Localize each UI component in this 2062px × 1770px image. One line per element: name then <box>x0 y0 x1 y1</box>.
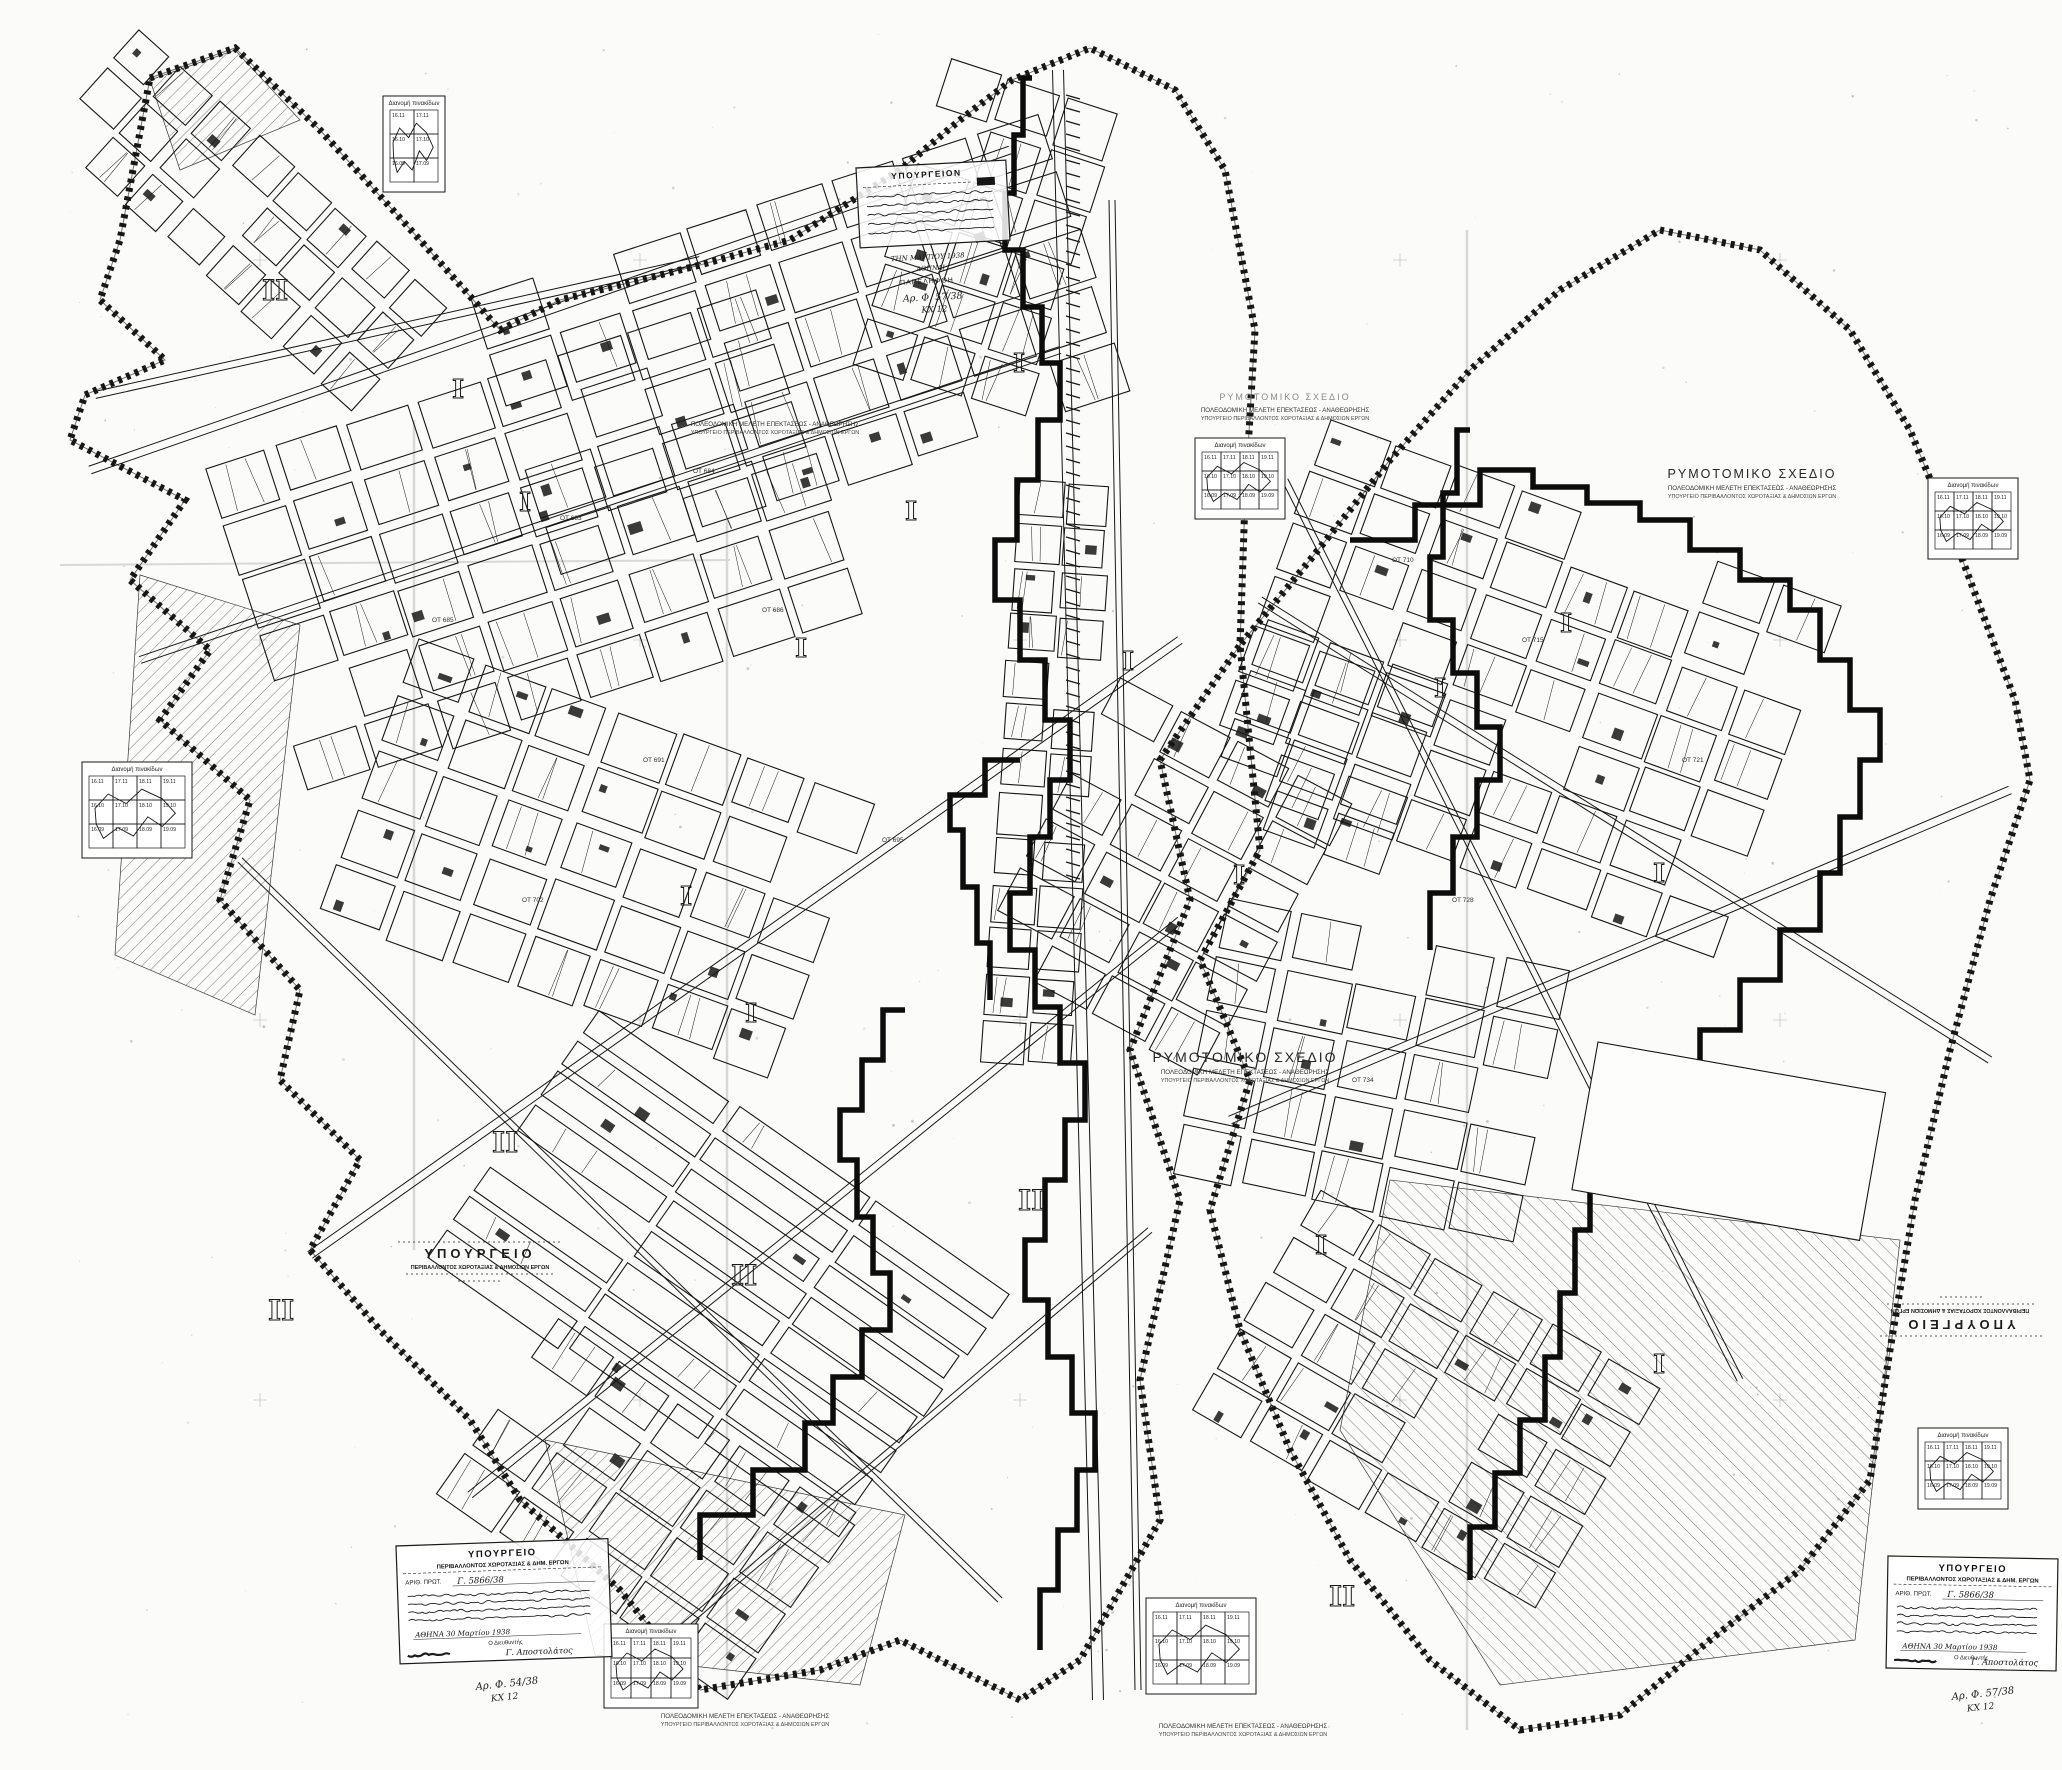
file-code: ΚΧ 12 <box>1966 1702 1996 1715</box>
stamp-signature: Γ. Αποστολάτος <box>1970 1656 2038 1667</box>
keymap-sheet-number: 17.10 <box>1946 1464 1959 1470</box>
approval-stamp: ΥΠΟΥΡΓΕΙΟΠΕΡΙΒΑΛΛΟΝΤΟΣ ΧΩΡΟΤΑΞΙΑΣ & ΔΗΜ.… <box>1886 1556 2058 1671</box>
keymap-sheet-number: 18.09 <box>653 1681 666 1687</box>
ministry-dept: ΠΕΡΙΒΑΛΛΟΝΤΟΣ ΧΩΡΟΤΑΞΙΑΣ & ΔΗΜΟΣΙΩΝ ΕΡΓΩ… <box>1891 1307 2030 1313</box>
keymap-sheet-number: 17.11 <box>115 779 128 785</box>
plan-subtitle1-label: ΠΟΛΕΟΔΟΜΙΚΗ ΜΕΛΕΤΗ ΕΠΕΚΤΑΣΕΩΣ - ΑΝΑΘΕΩΡΗ… <box>661 1713 830 1720</box>
keymap-index: Διανομή πινακίδων16.1117.1118.1119.1116.… <box>1146 1598 1256 1694</box>
block-number-label: ΟΤ 710 <box>1392 557 1414 564</box>
keymap-sheet-number: 18.10 <box>1242 474 1255 480</box>
block-number-label: ΟΤ 684 <box>693 468 715 475</box>
block-number-label: ΟΤ 686 <box>762 607 784 614</box>
plan-title-label: ΡΥΜΟΤΟΜΙΚΟ ΣΧΕΔΙΟ <box>1668 467 1837 481</box>
keymap-sheet-number: 19.10 <box>1994 514 2007 520</box>
keymap-sheet-number: 19.11 <box>1227 1615 1240 1621</box>
block-number-label: ΟΤ 691 <box>643 757 665 764</box>
block-number-label: ΟΤ 734 <box>1352 1077 1374 1084</box>
keymap-sheet-number: 16.10 <box>1927 1464 1940 1470</box>
keymap-sheet-number: 16.09 <box>91 827 104 833</box>
keymap-sheet-number: 18.09 <box>1965 1483 1978 1489</box>
approved-plan-limit <box>950 760 1020 1000</box>
keymap-sheet-number: 18.09 <box>1242 493 1255 499</box>
block-number-label: ΟΤ 685 <box>432 617 454 624</box>
keymap-index: Διανομή πινακίδων16.1117.1118.1119.1116.… <box>82 762 192 858</box>
keymap-sheet-number: 19.11 <box>1984 1445 1997 1451</box>
keymap-sheet-number: 17.10 <box>416 137 429 143</box>
ministry-dept: ΠΕΡΙΒΑΛΛΟΝΤΟΣ ΧΩΡΟΤΑΞΙΑΣ & ΔΗΜΟΣΙΩΝ ΕΡΓΩ… <box>411 1265 550 1271</box>
block-number-label: ΟΤ 702 <box>522 897 544 904</box>
sector-numeral: Ι <box>680 882 692 912</box>
plan-subtitle2-label: ΥΠΟΥΡΓΕΙΟ ΠΕΡΙΒΑΛΛΟΝΤΟΣ ΧΩΡΟΤΑΞΙΑΣ & ΔΗΜ… <box>1161 1078 1329 1084</box>
keymap-sheet-number: 19.10 <box>1261 474 1274 480</box>
keymap-index: Διανομή πινακίδων16.1117.1118.1119.1116.… <box>604 1624 698 1708</box>
sector-numeral: Ι <box>452 375 464 405</box>
keymap-sheet-number: 16.11 <box>1204 455 1217 461</box>
block-number-label: ΟΤ 715 <box>1522 637 1544 644</box>
keymap-sheet-number: 18.11 <box>1975 495 1988 501</box>
sector-numeral: ΙΙ <box>731 1259 757 1292</box>
ministry-name: ΥΠΟΥΡΓΕΙΟ <box>424 1246 535 1261</box>
keymap-sheet-number: 16.11 <box>1927 1445 1940 1451</box>
file-code: ΚΧ 12 <box>920 304 947 315</box>
block-number-label: ΟΤ 695 <box>882 837 904 844</box>
keymap-sheet-number: 19.10 <box>673 1661 686 1667</box>
sector-numeral: Ι <box>905 497 917 527</box>
sector-numeral: Ι <box>1653 1350 1665 1380</box>
plan-title-block: ΠΟΛΕΟΔΟΜΙΚΗ ΜΕΛΕΤΗ ΕΠΕΚΤΑΣΕΩΣ - ΑΝΑΘΕΩΡΗ… <box>661 1713 830 1728</box>
file-number: Αρ. Φ. 54/38 <box>474 1675 539 1693</box>
ministry-stamp: ΥΠΟΥΡΓΕΙΟΠΕΡΙΒΑΛΛΟΝΤΟΣ ΧΩΡΟΤΑΞΙΑΣ & ΔΗΜΟ… <box>398 1242 563 1281</box>
sector-numeral: ΙΙ <box>262 274 288 307</box>
stamp-act-label: ΑΡΙΘ. ΠΡΩΤ. <box>1895 1590 1932 1598</box>
keymap-sheet-number: 16.11 <box>1937 495 1950 501</box>
street-grid-cluster <box>427 1008 1010 1543</box>
plan-title-block: ΠΟΛΕΟΔΟΜΙΚΗ ΜΕΛΕΤΗ ΕΠΕΚΤΑΣΕΩΣ - ΑΝΑΘΕΩΡΗ… <box>691 421 860 436</box>
plan-subtitle1-label: ΠΟΛΕΟΔΟΜΙΚΗ ΜΕΛΕΤΗ ΕΠΕΚΤΑΣΕΩΣ - ΑΝΑΘΕΩΡΗ… <box>691 421 860 428</box>
plan-title-block: ΡΥΜΟΤΟΜΙΚΟ ΣΧΕΔΙΟΠΟΛΕΟΔΟΜΙΚΗ ΜΕΛΕΤΗ ΕΠΕΚ… <box>1201 392 1370 422</box>
keymap-sheet-number: 19.10 <box>1227 1639 1240 1645</box>
sector-numeral: ΙΙ <box>268 1294 294 1327</box>
keymap-sheet-number: 18.11 <box>1203 1615 1216 1621</box>
keymap-title: Διανομή πινακίδων <box>1215 442 1266 449</box>
street-grid-cluster <box>1199 418 1842 962</box>
keymap-sheet-number: 18.10 <box>653 1661 666 1667</box>
keymap-sheet-number: 17.11 <box>1956 495 1969 501</box>
file-number-note: Αρ. Φ. 54/38ΚΧ 12 <box>474 1675 540 1706</box>
keymap-sheet-number: 16.10 <box>1937 514 1950 520</box>
keymap-index: Διανομή πινακίδων16.1117.1118.1119.1116.… <box>1195 438 1285 519</box>
keymap-sheet-number: 16.11 <box>91 779 104 785</box>
keymap-sheet-number: 18.11 <box>1242 455 1255 461</box>
plan-subtitle1-label: ΠΟΛΕΟΔΟΜΙΚΗ ΜΕΛΕΤΗ ΕΠΕΚΤΑΣΕΩΣ - ΑΝΑΘΕΩΡΗ… <box>1159 1723 1328 1730</box>
keymap-sheet-number: 19.11 <box>1994 495 2007 501</box>
keymap-sheet-number: 19.11 <box>673 1641 686 1647</box>
plan-subtitle2-label: ΥΠΟΥΡΓΕΙΟ ΠΕΡΙΒΑΛΛΟΝΤΟΣ ΧΩΡΟΤΑΞΙΑΣ & ΔΗΜ… <box>1201 416 1369 422</box>
plan-title-label: ΡΥΜΟΤΟΜΙΚΟ ΣΧΕΔΙΟ <box>1152 1049 1337 1065</box>
keymap-sheet-number: 17.10 <box>1956 514 1969 520</box>
keymap-sheet-number: 16.09 <box>1155 1663 1168 1669</box>
approval-stamp: ΥΠΟΥΡΓΕΙΟΠΕΡΙΒΑΛΛΟΝΤΟΣ ΧΩΡΟΤΑΞΙΑΣ & ΔΗΜ.… <box>396 1539 612 1664</box>
ministry-name: ΥΠΟΥΡΓΕΙΟ <box>1904 1317 2015 1332</box>
keymap-sheet-number: 19.09 <box>1227 1663 1240 1669</box>
plan-title-block: ΡΥΜΟΤΟΜΙΚΟ ΣΧΕΔΙΟΠΟΛΕΟΔΟΜΙΚΗ ΜΕΛΕΤΗ ΕΠΕΚ… <box>1668 467 1837 500</box>
sector-numeral: Ι <box>1013 349 1025 379</box>
sector-numeral: ΙΙ <box>492 1126 518 1159</box>
keymap-sheet-number: 17.11 <box>1223 455 1236 461</box>
plan-title-block: ΠΟΛΕΟΔΟΜΙΚΗ ΜΕΛΕΤΗ ΕΠΕΚΤΑΣΕΩΣ - ΑΝΑΘΕΩΡΗ… <box>1159 1723 1328 1738</box>
stamp-act-label: ΑΡΙΘ. ΠΡΩΤ. <box>405 1578 442 1586</box>
ministry-stamp: ΥΠΟΥΡΓΕΙΟΠΕΡΙΒΑΛΛΟΝΤΟΣ ΧΩΡΟΤΑΞΙΑΣ & ΔΗΜΟ… <box>1877 1297 2042 1336</box>
keymap-sheet-number: 19.10 <box>163 803 176 809</box>
sector-numeral: Ι <box>1233 861 1245 891</box>
sector-numeral: ΙΙ <box>1018 1184 1044 1217</box>
keymap-sheet-number: 16.11 <box>613 1641 626 1647</box>
keymap-sheet-number: 18.11 <box>653 1641 666 1647</box>
plan-subtitle1-label: ΠΟΛΕΟΔΟΜΙΚΗ ΜΕΛΕΤΗ ΕΠΕΚΤΑΣΕΩΣ - ΑΝΑΘΕΩΡΗ… <box>1161 1069 1330 1076</box>
keymap-index: Διανομή πινακίδων16.1117.1118.1119.1116.… <box>1928 478 2018 559</box>
keymap-sheet-number: 19.09 <box>1994 533 2007 539</box>
keymap-sheet-number: 19.11 <box>163 779 176 785</box>
sector-numeral: Ι <box>1122 647 1134 677</box>
keymap-title: Διανομή πινακίδων <box>112 766 163 773</box>
keymap-index: Διανομή πινακίδων16.1117.1116.1017.1016.… <box>383 96 445 192</box>
scanned-city-plan-page: Διανομή πινακίδων16.1117.1116.1017.1016.… <box>0 0 2062 1770</box>
city-plan-scan: Διανομή πινακίδων16.1117.1116.1017.1016.… <box>0 0 2062 1770</box>
plan-subtitle2-label: ΥΠΟΥΡΓΕΙΟ ΠΕΡΙΒΑΛΛΟΝΤΟΣ ΧΩΡΟΤΑΞΙΑΣ & ΔΗΜ… <box>1668 494 1836 500</box>
file-number: Αρ. Φ. 57/38 <box>902 291 963 305</box>
keymap-sheet-number: 18.09 <box>1975 533 1988 539</box>
keymap-sheet-number: 19.10 <box>1984 1464 1997 1470</box>
stamp-header: ΥΠΟΥΡΓΕΙΟ <box>1938 1563 2007 1575</box>
keymap-sheet-number: 19.09 <box>163 827 176 833</box>
keymap-sheet-number: 19.09 <box>1984 1483 1997 1489</box>
sector-numeral: Ι <box>1653 859 1665 889</box>
street-grid-cluster <box>1199 619 1448 875</box>
approved-plan-limit <box>995 78 1095 1650</box>
keymap-sheet-number: 18.11 <box>139 779 152 785</box>
block-number-label: ΟΤ 721 <box>1682 757 1704 764</box>
keymap-title: Διανομή πινακίδων <box>389 100 440 107</box>
file-number: Αρ. Φ. 57/38 <box>1950 1685 2015 1703</box>
keymap-index: Διανομή πινακίδων16.1117.1118.1119.1116.… <box>1918 1428 2008 1509</box>
sector-numeral: Ι <box>745 999 757 1029</box>
sector-numeral: Ι <box>519 488 531 518</box>
keymap-sheet-number: 17.11 <box>1179 1615 1192 1621</box>
plan-title-label: ΡΥΜΟΤΟΜΙΚΟ ΣΧΕΔΙΟ <box>1219 392 1350 402</box>
block-number-label: ΟΤ 728 <box>1452 897 1474 904</box>
keymap-title: Διανομή πινακίδων <box>1176 1602 1227 1609</box>
plan-subtitle1-label: ΠΟΛΕΟΔΟΜΙΚΗ ΜΕΛΕΤΗ ΕΠΕΚΤΑΣΕΩΣ - ΑΝΑΘΕΩΡΗ… <box>1668 485 1837 492</box>
keymap-sheet-number: 16.11 <box>1155 1615 1168 1621</box>
sector-numeral: Ι <box>1315 1231 1327 1261</box>
keymap-sheet-number: 16.10 <box>1204 474 1217 480</box>
receipt-received: ΠΑΡΕΛΗΦΘΗ <box>900 277 954 287</box>
keymap-sheet-number: 18.09 <box>1203 1663 1216 1669</box>
keymap-sheet-number: 17.10 <box>633 1661 646 1667</box>
keymap-sheet-number: 17.10 <box>1223 474 1236 480</box>
keymap-sheet-number: 19.11 <box>1261 455 1274 461</box>
keymap-sheet-number: 17.11 <box>633 1641 646 1647</box>
stamp-signer-label: Ο Διευθυντής <box>488 1639 523 1647</box>
keymap-sheet-number: 18.10 <box>139 803 152 809</box>
plan-subtitle1-label: ΠΟΛΕΟΔΟΜΙΚΗ ΜΕΛΕΤΗ ΕΠΕΚΤΑΣΕΩΣ - ΑΝΑΘΕΩΡΗ… <box>1201 407 1370 414</box>
plan-subtitle2-label: ΥΠΟΥΡΓΕΙΟ ΠΕΡΙΒΑΛΛΟΝΤΟΣ ΧΩΡΟΤΑΞΙΑΣ & ΔΗΜ… <box>661 1722 829 1728</box>
keymap-sheet-number: 18.10 <box>1203 1639 1216 1645</box>
block-number-label: ΟΤ 683 <box>560 515 582 522</box>
file-code: ΚΧ 12 <box>490 1692 520 1705</box>
sector-numeral: Ι <box>1560 609 1572 639</box>
keymap-sheet-number: 17.11 <box>416 113 429 119</box>
keymap-sheet-number: 19.09 <box>1261 493 1274 499</box>
plan-subtitle2-label: ΥΠΟΥΡΓΕΙΟ ΠΕΡΙΒΑΛΛΟΝΤΟΣ ΧΩΡΟΤΑΞΙΑΣ & ΔΗΜ… <box>1159 1732 1327 1738</box>
keymap-sheet-number: 19.09 <box>673 1681 686 1687</box>
keymap-sheet-number: 16.11 <box>392 113 405 119</box>
keymap-sheet-number: 18.11 <box>1965 1445 1978 1451</box>
receipt-place: ΑΘΗΝΑΙ <box>915 263 945 273</box>
keymap-sheet-number: 17.11 <box>1946 1445 1959 1451</box>
plan-subtitle2-label: ΥΠΟΥΡΓΕΙΟ ΠΕΡΙΒΑΛΛΟΝΤΟΣ ΧΩΡΟΤΑΞΙΑΣ & ΔΗΜ… <box>691 430 859 436</box>
keymap-sheet-number: 17.09 <box>416 161 429 167</box>
sector-numeral: Ι <box>795 634 807 664</box>
keymap-title: Διανομή πινακίδων <box>1948 482 1999 489</box>
keymap-title: Διανομή πινακίδων <box>626 1628 677 1635</box>
sector-numeral: ΙΙ <box>1329 1580 1355 1613</box>
keymap-sheet-number: 18.10 <box>1975 514 1988 520</box>
street-grid-cluster <box>469 112 1133 579</box>
keymap-sheet-number: 18.09 <box>139 827 152 833</box>
keymap-title: Διανομή πινακίδων <box>1938 1432 1989 1439</box>
sector-numeral: Ι <box>1434 674 1446 704</box>
file-number-note: Αρ. Φ. 57/38ΚΧ 12 <box>1950 1685 2016 1716</box>
keymap-sheet-number: 18.10 <box>1965 1464 1978 1470</box>
keymap-sheet-number: 16.10 <box>613 1661 626 1667</box>
